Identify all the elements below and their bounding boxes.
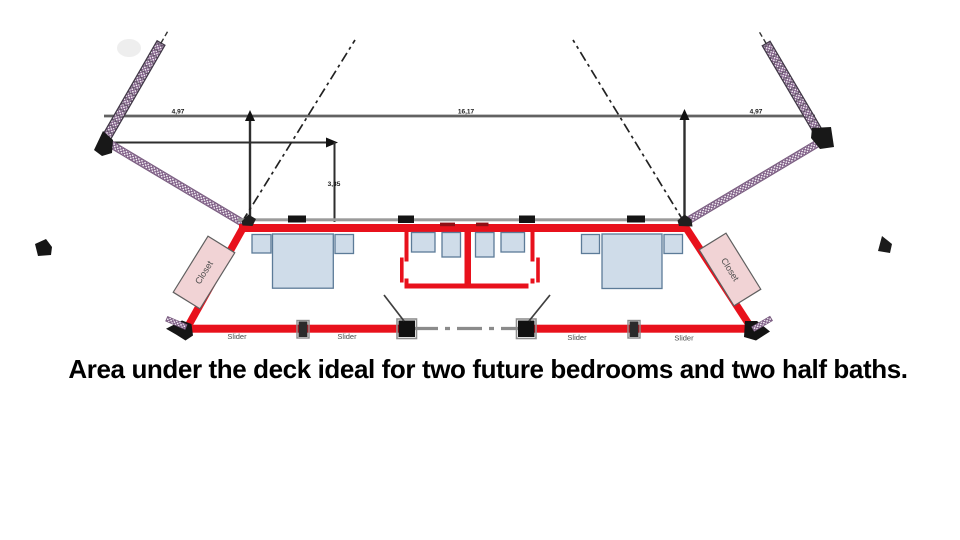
svg-text:Slider: Slider	[227, 332, 247, 341]
svg-text:4,97: 4,97	[750, 109, 763, 116]
svg-text:16,17: 16,17	[458, 109, 475, 116]
svg-text:4,97: 4,97	[172, 109, 185, 116]
svg-text:3,35: 3,35	[328, 181, 341, 188]
svg-text:Slider: Slider	[337, 332, 357, 341]
svg-text:Area under the deck ideal for: Area under the deck ideal for two future…	[68, 354, 907, 384]
svg-text:Slider: Slider	[567, 333, 587, 342]
svg-text:Slider: Slider	[674, 334, 694, 343]
